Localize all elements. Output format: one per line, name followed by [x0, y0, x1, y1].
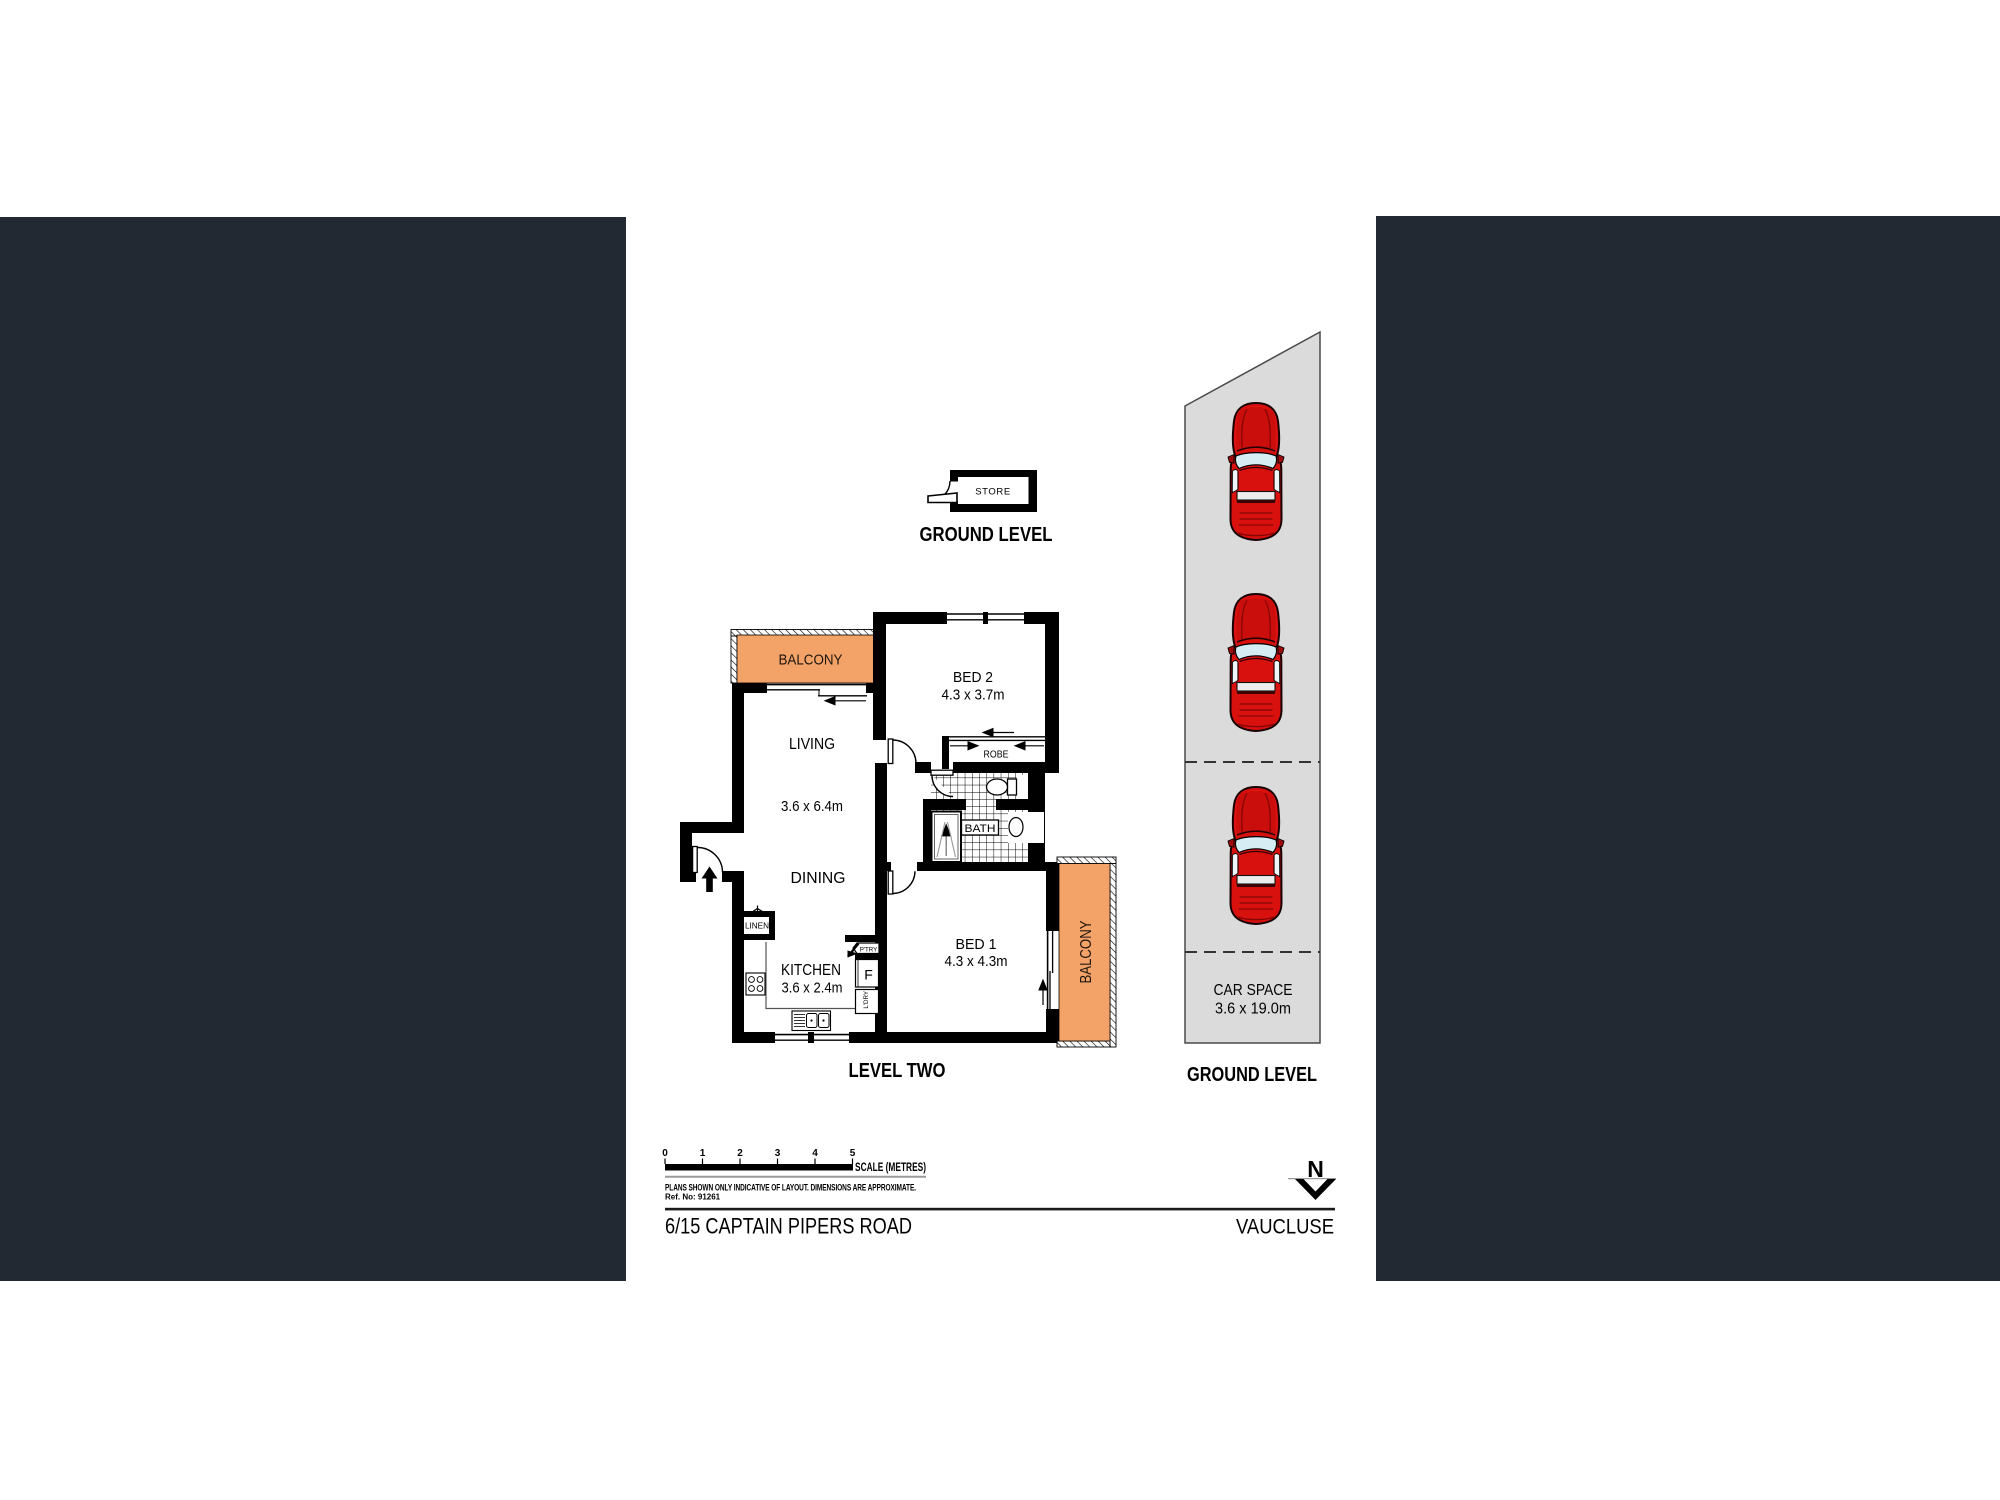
svg-text:STORE: STORE: [975, 487, 1011, 498]
svg-text:3.6 x 2.4m: 3.6 x 2.4m: [782, 980, 843, 997]
svg-text:4.3 x 3.7m: 4.3 x 3.7m: [942, 687, 1005, 704]
svg-text:L'DRY: L'DRY: [863, 991, 870, 1009]
svg-text:BED 2: BED 2: [953, 669, 993, 686]
svg-text:0: 0: [662, 1148, 668, 1159]
svg-text:3.6 x 6.4m: 3.6 x 6.4m: [781, 798, 843, 815]
svg-text:BALCONY: BALCONY: [1078, 920, 1095, 983]
svg-text:CAR SPACE: CAR SPACE: [1214, 982, 1293, 999]
svg-text:5: 5: [850, 1148, 856, 1159]
svg-text:DINING: DINING: [791, 870, 846, 887]
svg-text:LINEN: LINEN: [745, 922, 769, 931]
svg-text:PLANS SHOWN ONLY INDICATIVE OF: PLANS SHOWN ONLY INDICATIVE OF LAYOUT. D…: [665, 1183, 916, 1193]
svg-text:P'TRY: P'TRY: [860, 947, 878, 954]
svg-text:ROBE: ROBE: [984, 749, 1009, 761]
svg-text:SCALE (METRES): SCALE (METRES): [855, 1162, 926, 1174]
svg-text:2: 2: [737, 1148, 743, 1159]
svg-text:KITCHEN: KITCHEN: [781, 962, 841, 979]
svg-text:BATH: BATH: [965, 823, 996, 835]
svg-text:LEVEL TWO: LEVEL TWO: [849, 1059, 946, 1082]
svg-text:GROUND LEVEL: GROUND LEVEL: [920, 523, 1053, 546]
svg-text:VAUCLUSE: VAUCLUSE: [1236, 1216, 1334, 1239]
svg-text:BALCONY: BALCONY: [779, 653, 843, 669]
svg-text:LIVING: LIVING: [789, 736, 835, 753]
svg-text:3: 3: [775, 1148, 781, 1159]
svg-text:GROUND LEVEL: GROUND LEVEL: [1187, 1063, 1317, 1086]
svg-text:F: F: [864, 967, 873, 983]
svg-text:BED 1: BED 1: [956, 936, 997, 953]
svg-text:Ref. No: 91261: Ref. No: 91261: [665, 1193, 721, 1202]
svg-text:3.6 x 19.0m: 3.6 x 19.0m: [1215, 1001, 1291, 1018]
svg-text:6/15 CAPTAIN PIPERS ROAD: 6/15 CAPTAIN PIPERS ROAD: [665, 1214, 912, 1239]
svg-text:1: 1: [700, 1148, 706, 1159]
svg-text:4: 4: [812, 1148, 818, 1159]
svg-text:4.3 x 4.3m: 4.3 x 4.3m: [945, 953, 1008, 970]
